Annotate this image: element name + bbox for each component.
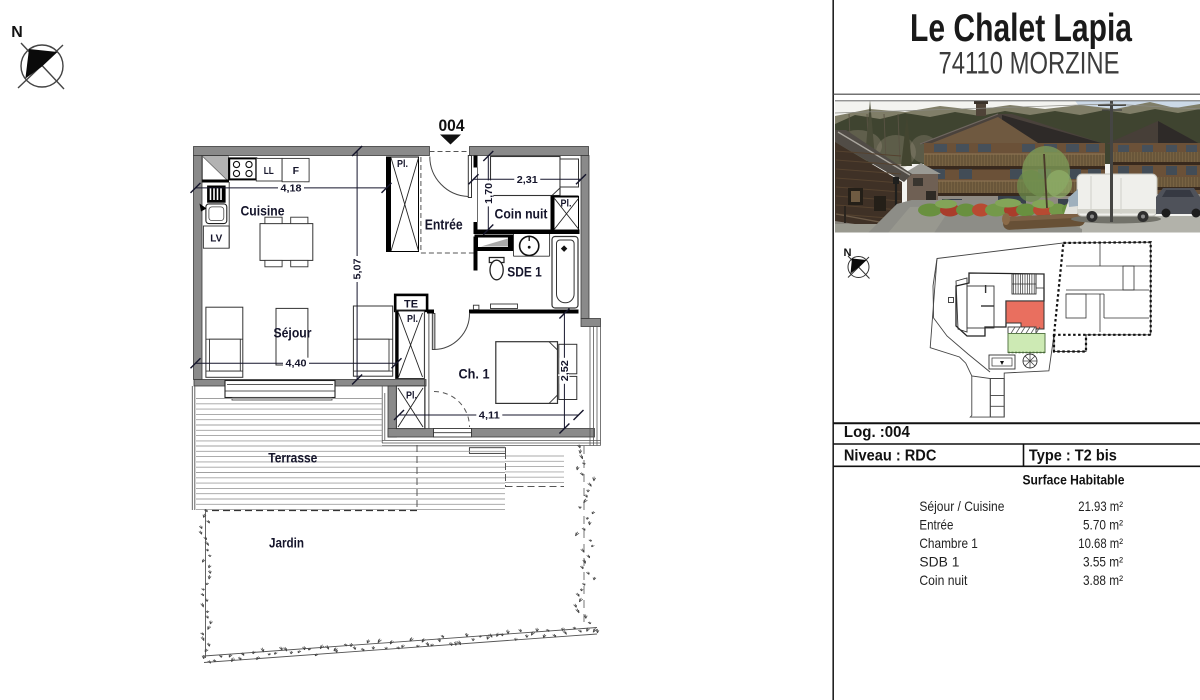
svg-text:Ch. 1: Ch. 1 — [459, 365, 490, 381]
svg-text:004: 004 — [439, 117, 466, 135]
svg-text:4,40: 4,40 — [286, 358, 307, 370]
svg-text:Entrée: Entrée — [425, 217, 463, 234]
svg-text:SDE 1: SDE 1 — [507, 264, 542, 280]
svg-text:N: N — [11, 24, 23, 41]
svg-text:TE: TE — [404, 299, 418, 311]
svg-text:1,70: 1,70 — [483, 183, 495, 204]
svg-text:Pl.: Pl. — [397, 159, 408, 170]
svg-text:F: F — [293, 165, 300, 177]
svg-text:SDB 1: SDB 1 — [919, 554, 959, 570]
svg-text:5.70 m²: 5.70 m² — [1083, 517, 1123, 533]
svg-text:2,52: 2,52 — [559, 360, 571, 381]
svg-text:21.93 m²: 21.93 m² — [1078, 498, 1123, 514]
svg-text:Séjour: Séjour — [274, 325, 312, 341]
svg-text:Terrasse: Terrasse — [268, 450, 317, 466]
svg-text:10.68 m²: 10.68 m² — [1078, 535, 1123, 551]
svg-text:Cuisine: Cuisine — [241, 203, 285, 219]
svg-text:3.55 m²: 3.55 m² — [1083, 554, 1123, 570]
svg-text:4,18: 4,18 — [281, 182, 302, 194]
svg-text:Chambre 1: Chambre 1 — [919, 535, 978, 551]
svg-text:Type : T2 bis: Type : T2 bis — [1029, 447, 1117, 464]
svg-text:Entrée: Entrée — [919, 517, 953, 533]
svg-text:Surface Habitable: Surface Habitable — [1023, 471, 1125, 487]
svg-text:LV: LV — [210, 233, 222, 245]
svg-text:Pl.: Pl. — [407, 314, 418, 325]
svg-text:74110 MORZINE: 74110 MORZINE — [939, 45, 1120, 81]
svg-text:Jardin: Jardin — [269, 535, 304, 551]
svg-text:Séjour / Cuisine: Séjour / Cuisine — [919, 498, 1004, 514]
svg-text:3.88 m²: 3.88 m² — [1083, 572, 1123, 588]
svg-text:2,31: 2,31 — [517, 174, 538, 186]
svg-text:Niveau : RDC: Niveau : RDC — [844, 447, 937, 464]
svg-text:4,11: 4,11 — [479, 410, 500, 422]
svg-text:Pl.: Pl. — [561, 199, 572, 210]
svg-text:LL: LL — [264, 165, 274, 177]
svg-text:Pl.: Pl. — [406, 391, 417, 402]
svg-text:5,07: 5,07 — [352, 258, 364, 279]
svg-text:Coin nuit: Coin nuit — [495, 206, 548, 222]
svg-text:Coin nuit: Coin nuit — [919, 572, 967, 588]
svg-text:Log. :004: Log. :004 — [844, 424, 910, 441]
svg-text:N: N — [844, 247, 852, 259]
